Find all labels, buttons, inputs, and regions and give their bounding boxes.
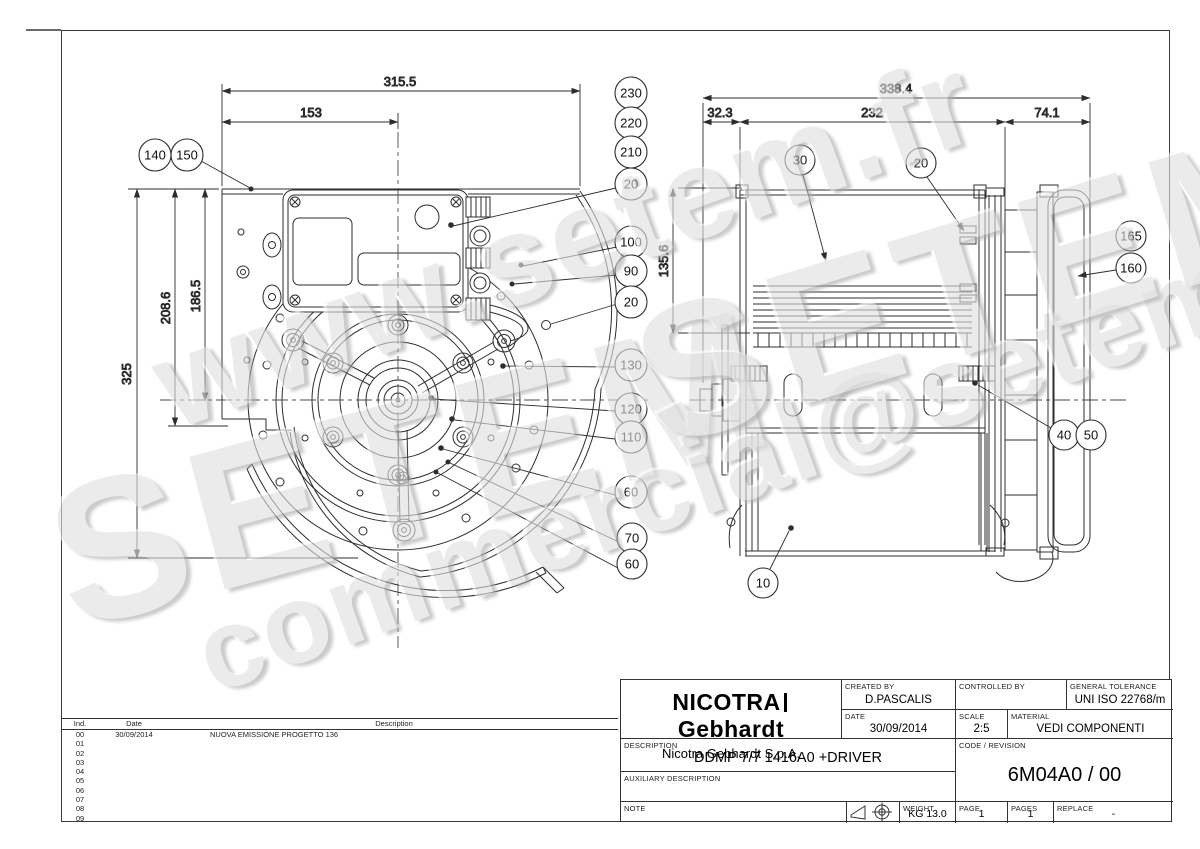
date-value: 30/09/2014 — [842, 723, 955, 735]
revision-row: 09 — [62, 814, 618, 823]
dim-below-center: 208.6 — [158, 292, 173, 325]
dim-casing-width: 232 — [861, 105, 883, 120]
created-by-value: D.PASCALIS — [842, 694, 955, 706]
revision-table: Ind. Date Description 00 30/09/2014 NUOV… — [62, 718, 618, 822]
rev-header-description: Description — [170, 719, 618, 729]
balloon-label: 210 — [620, 145, 642, 160]
general-tolerance-value: UNI ISO 22768/m — [1067, 694, 1173, 706]
dim-to-centerline-y: 186.5 — [188, 280, 203, 313]
pages-value: 1 — [1008, 808, 1053, 820]
weight-value: KG 13.0 — [900, 808, 955, 820]
rev-header-ind: Ind. — [62, 719, 98, 729]
auxiliary-description-cell: AUXILIARY DESCRIPTION — [621, 771, 955, 801]
side-view-drawing — [700, 185, 1090, 581]
balloon-label: 20 — [624, 177, 638, 192]
balloon-label: 40 — [1057, 428, 1071, 443]
projection-target-crosshair-icon — [872, 803, 892, 822]
balloon-label: 110 — [621, 430, 642, 445]
code-revision-value: 6M04A0 / 00 — [956, 764, 1173, 787]
balloon-label: 140 — [144, 148, 166, 163]
company-logo-cell: NICOTRAGebhardt Nicotra Gebhardt S.p.A. — [621, 680, 841, 738]
dim-left-offset: 32.3 — [707, 105, 732, 120]
date-cell: DATE 30/09/2014 — [841, 709, 955, 738]
controlled-by-cell: CONTROLLED BY — [955, 680, 1066, 709]
balloon-label: 130 — [620, 358, 642, 373]
note-label: NOTE — [624, 804, 646, 813]
code-revision-label: CODE / REVISION — [959, 741, 1026, 750]
dim-overall-width: 315.5 — [384, 74, 417, 89]
casing-side — [727, 185, 1009, 556]
balloon-label: 100 — [620, 235, 642, 250]
scale-cell: SCALE 2:5 — [955, 709, 1007, 738]
revision-table-header: Ind. Date Description — [62, 719, 618, 730]
revision-row: 08 — [62, 804, 618, 813]
balloon-label: 60 — [624, 485, 638, 500]
balloon-label: 70 — [625, 531, 639, 546]
first-angle-projection-cone-icon — [851, 806, 865, 819]
replace-value: - — [1054, 808, 1173, 820]
revision-row: 01 — [62, 739, 618, 748]
description-label: DESCRIPTION — [624, 741, 677, 750]
dimensions-side: 338.4 32.3 232 74.1 135.6 — [656, 81, 1090, 420]
material-cell: MATERIAL VEDI COMPONENTI — [1007, 709, 1173, 738]
dim-overall-length: 338.4 — [880, 81, 913, 96]
description-value: DDMP 7/7 1416A0 +DRIVER — [621, 750, 955, 766]
revision-row: 02 — [62, 749, 618, 758]
balloon-label: 90 — [624, 264, 638, 279]
page-value: 1 — [956, 808, 1007, 820]
revision-row: 04 — [62, 767, 618, 776]
material-value: VEDI COMPONENTI — [1008, 723, 1173, 735]
revision-row: 07 — [62, 795, 618, 804]
company-logo: NICOTRAGebhardt — [621, 689, 841, 743]
balloon-label: 60 — [625, 557, 639, 572]
balloon-label: 230 — [620, 86, 642, 101]
logo-separator — [784, 693, 787, 712]
balloons-side: 30 20 165 160 40 50 10 — [748, 145, 1146, 598]
revision-row: 06 — [62, 786, 618, 795]
rev-header-date: Date — [98, 719, 170, 729]
cable — [490, 305, 528, 341]
created-by-cell: CREATED BY D.PASCALIS — [841, 680, 955, 709]
dim-overall-height: 325 — [119, 363, 134, 385]
revision-row: 00 30/09/2014 NUOVA EMISSIONE PROGETTO 1… — [62, 730, 618, 739]
controlled-by-label: CONTROLLED BY — [959, 682, 1025, 691]
auxiliary-description-label: AUXILIARY DESCRIPTION — [624, 774, 720, 783]
balloon-label: 20 — [624, 295, 638, 310]
general-tolerance-cell: GENERAL TOLERANCE UNI ISO 22768/m — [1066, 680, 1173, 709]
dim-driver-length: 74.1 — [1034, 105, 1059, 120]
replace-cell: REPLACE - — [1053, 801, 1173, 823]
date-label: DATE — [845, 712, 865, 721]
balloon-label: 165 — [1120, 229, 1142, 244]
drawing-sheet: 315.5 153 325 208.6 186.5 338.4 32.3 232… — [0, 0, 1200, 849]
balloon-label: 20 — [914, 156, 928, 171]
note-cell: NOTE — [621, 801, 846, 823]
revision-row: 03 — [62, 758, 618, 767]
general-tolerance-label: GENERAL TOLERANCE — [1070, 682, 1157, 691]
created-by-label: CREATED BY — [845, 682, 894, 691]
balloon-label: 10 — [756, 576, 770, 591]
projection-symbol-cell — [846, 801, 899, 823]
balloon-label: 160 — [1120, 261, 1142, 276]
revision-row: 05 — [62, 776, 618, 785]
dim-to-centerline-x: 153 — [300, 105, 322, 120]
balloon-label: 30 — [793, 153, 807, 168]
code-revision-cell: CODE / REVISION 6M04A0 / 00 — [955, 738, 1173, 801]
spider-arms — [282, 329, 515, 541]
balloon-label: 220 — [620, 116, 642, 131]
material-label: MATERIAL — [1011, 712, 1050, 721]
balloon-label: 50 — [1084, 428, 1098, 443]
balloon-label: 150 — [176, 148, 198, 163]
driver-box — [283, 190, 528, 347]
scale-value: 2:5 — [956, 723, 1007, 735]
scale-label: SCALE — [959, 712, 985, 721]
cable-glands — [466, 197, 490, 320]
description-cell: DESCRIPTION DDMP 7/7 1416A0 +DRIVER — [621, 738, 955, 771]
page-cell: PAGE 1 — [955, 801, 1007, 823]
logo-part1: NICOTRA — [672, 689, 780, 715]
pages-cell: PAGES 1 — [1007, 801, 1053, 823]
dim-height-to-center: 135.6 — [656, 245, 671, 278]
title-block: NICOTRAGebhardt Nicotra Gebhardt S.p.A. … — [620, 679, 1172, 822]
weight-cell: WEIGHT KG 13.0 — [899, 801, 955, 823]
balloon-label: 120 — [620, 402, 642, 417]
